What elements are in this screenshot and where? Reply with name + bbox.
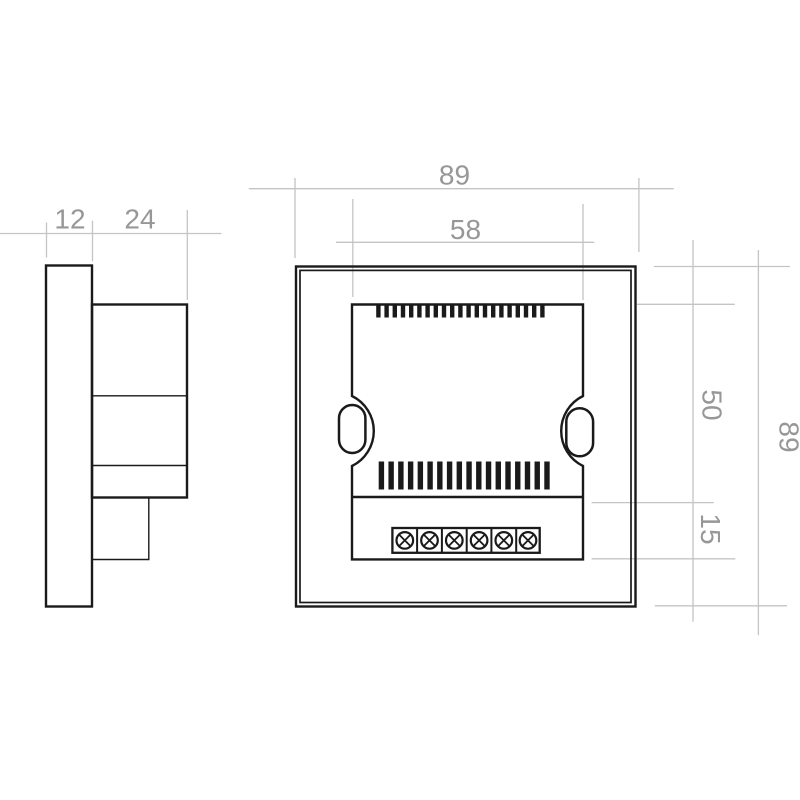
- svg-text:50: 50: [697, 389, 728, 420]
- svg-text:12: 12: [54, 204, 85, 235]
- svg-text:24: 24: [124, 204, 155, 235]
- svg-text:15: 15: [695, 513, 726, 544]
- svg-text:89: 89: [774, 421, 800, 452]
- svg-text:58: 58: [450, 214, 481, 245]
- svg-text:89: 89: [439, 160, 470, 191]
